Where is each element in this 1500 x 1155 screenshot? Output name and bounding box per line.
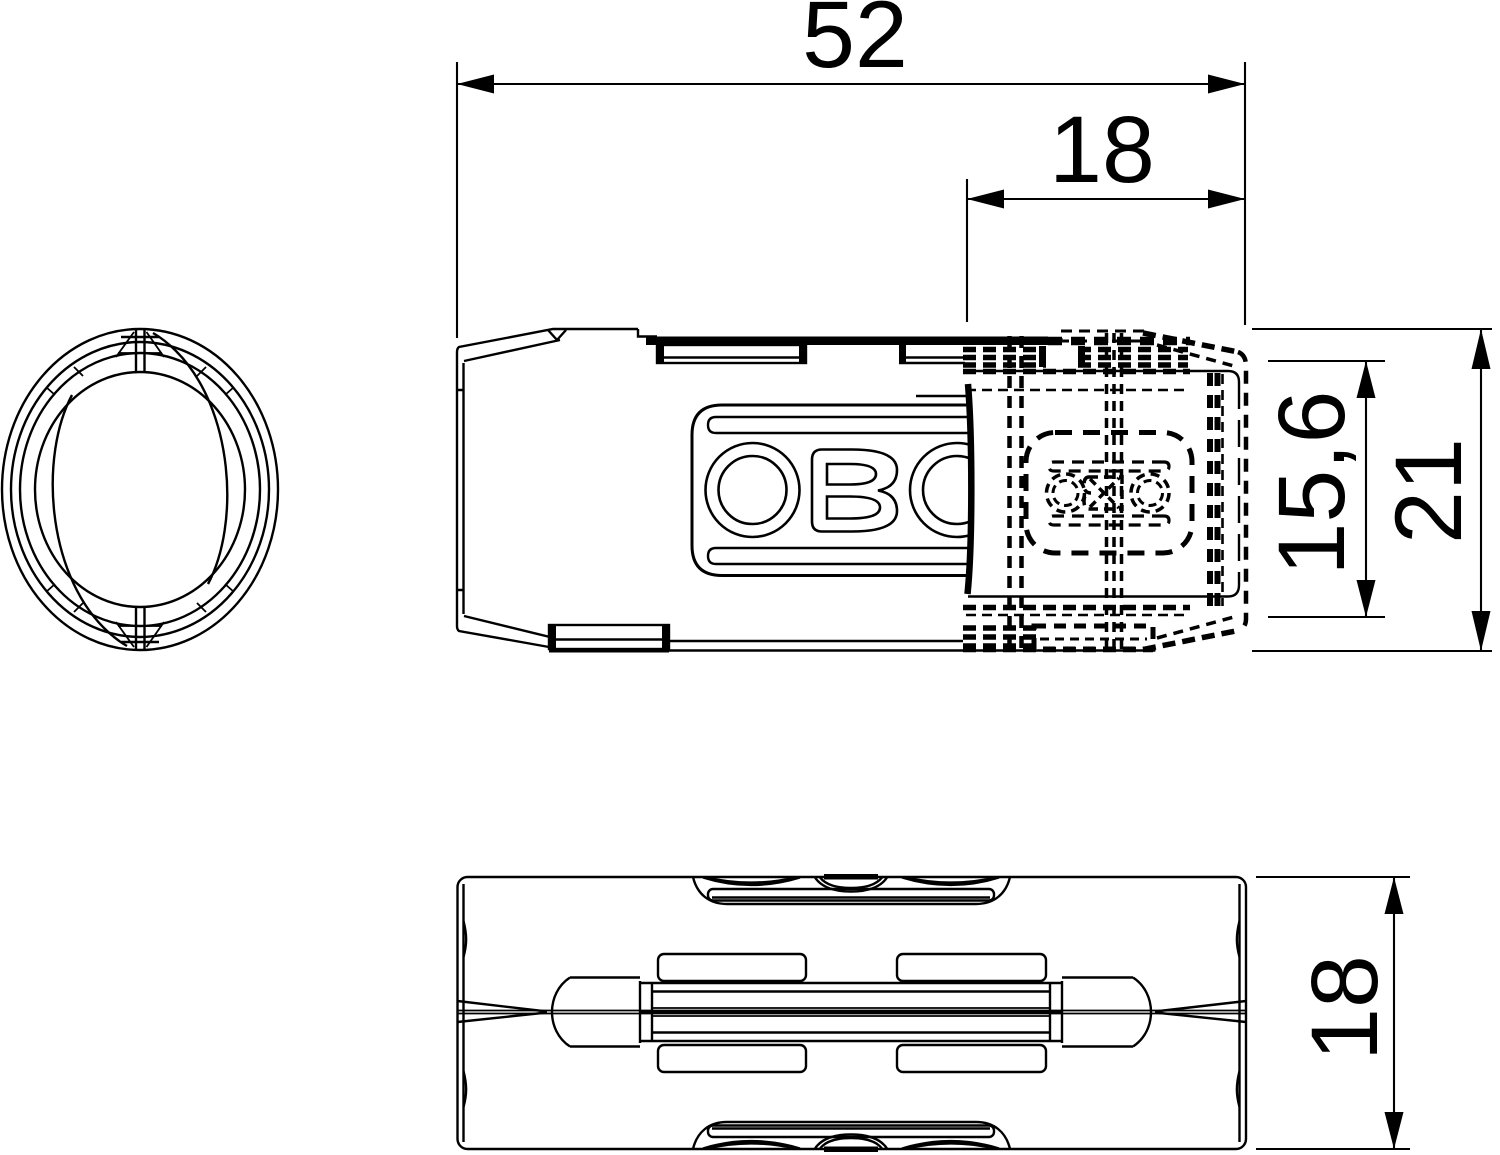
svg-text:18: 18: [1292, 955, 1398, 1061]
svg-text:15,6: 15,6: [1259, 391, 1365, 576]
svg-text:52: 52: [802, 0, 908, 88]
svg-text:18: 18: [1049, 97, 1155, 203]
svg-text:21: 21: [1376, 438, 1482, 544]
